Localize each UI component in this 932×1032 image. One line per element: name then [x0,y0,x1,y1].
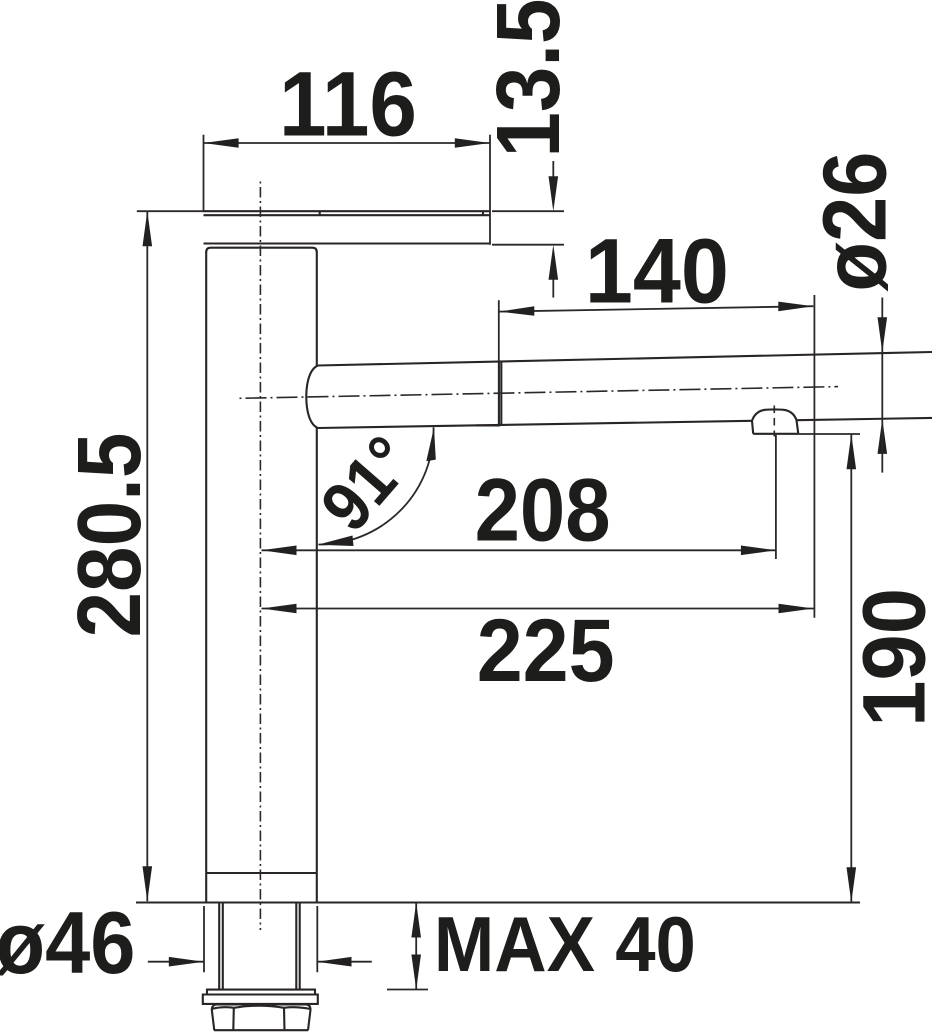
svg-text:190: 190 [844,588,932,727]
svg-text:MAX 40: MAX 40 [434,900,696,988]
svg-text:208: 208 [475,459,611,559]
svg-text:140: 140 [585,220,729,322]
svg-text:280.5: 280.5 [60,433,160,638]
svg-text:116: 116 [279,54,417,156]
svg-text:13.5: 13.5 [479,0,579,158]
svg-text:ø46: ø46 [0,893,136,992]
svg-text:225: 225 [477,600,615,700]
svg-text:ø26: ø26 [806,152,906,292]
